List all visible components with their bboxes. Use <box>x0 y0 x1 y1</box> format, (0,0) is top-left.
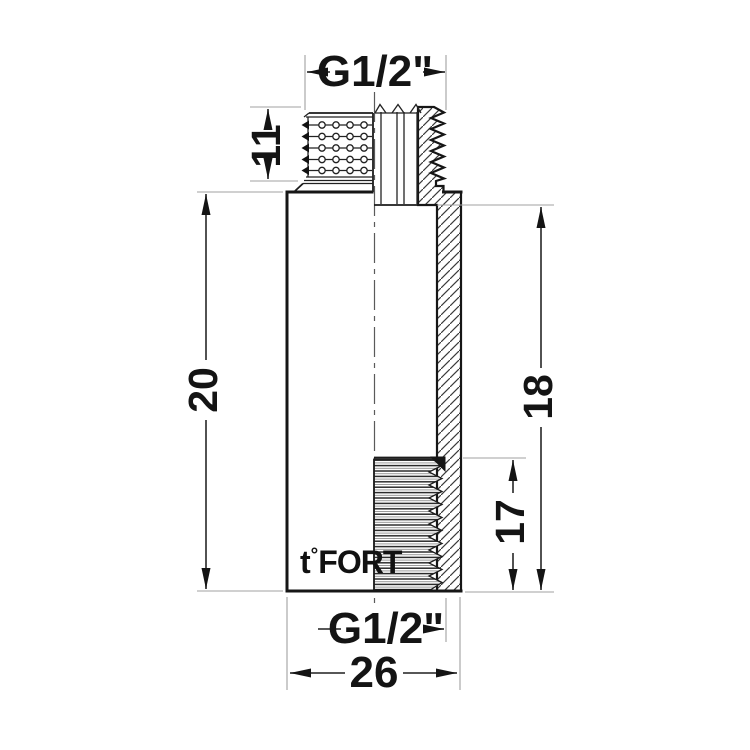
dim-male-thread-length-label: 11 <box>243 124 289 167</box>
male-thread-rows <box>302 121 373 176</box>
dim-thread-top-label: G1/2" <box>317 47 433 96</box>
dimension-thread-bottom: G1/2" <box>318 604 444 653</box>
brand-logo-t: t <box>300 544 311 580</box>
brand-logo-name: FORT <box>318 544 403 580</box>
dimension-male-thread-length: 11 <box>243 109 289 179</box>
dimension-thread-top: G1/2" <box>307 47 445 96</box>
dim-body-width-label: 26 <box>350 648 399 697</box>
brand-logo-degree: ° <box>311 545 319 566</box>
technical-drawing: G1/2" 11 20 18 17 G1/2" 26 t°FORT <box>0 0 750 750</box>
brand-logo: t°FORT <box>300 544 403 580</box>
dimension-overall-length: 20 <box>180 194 226 589</box>
drawing-canvas: G1/2" 11 20 18 17 G1/2" 26 t°FORT <box>0 0 750 750</box>
svg-text:t°FORT: t°FORT <box>300 544 403 580</box>
male-thread <box>295 113 373 192</box>
dim-socket-depth-label: 18 <box>515 374 561 420</box>
dimension-female-thread-length: 17 <box>487 460 533 590</box>
dimension-body-width: 26 <box>290 648 457 697</box>
dim-thread-bottom-label: G1/2" <box>328 604 444 653</box>
dim-overall-length-label: 20 <box>180 367 226 413</box>
dim-female-thread-length-label: 17 <box>487 499 533 545</box>
top-bore-section <box>374 105 421 206</box>
